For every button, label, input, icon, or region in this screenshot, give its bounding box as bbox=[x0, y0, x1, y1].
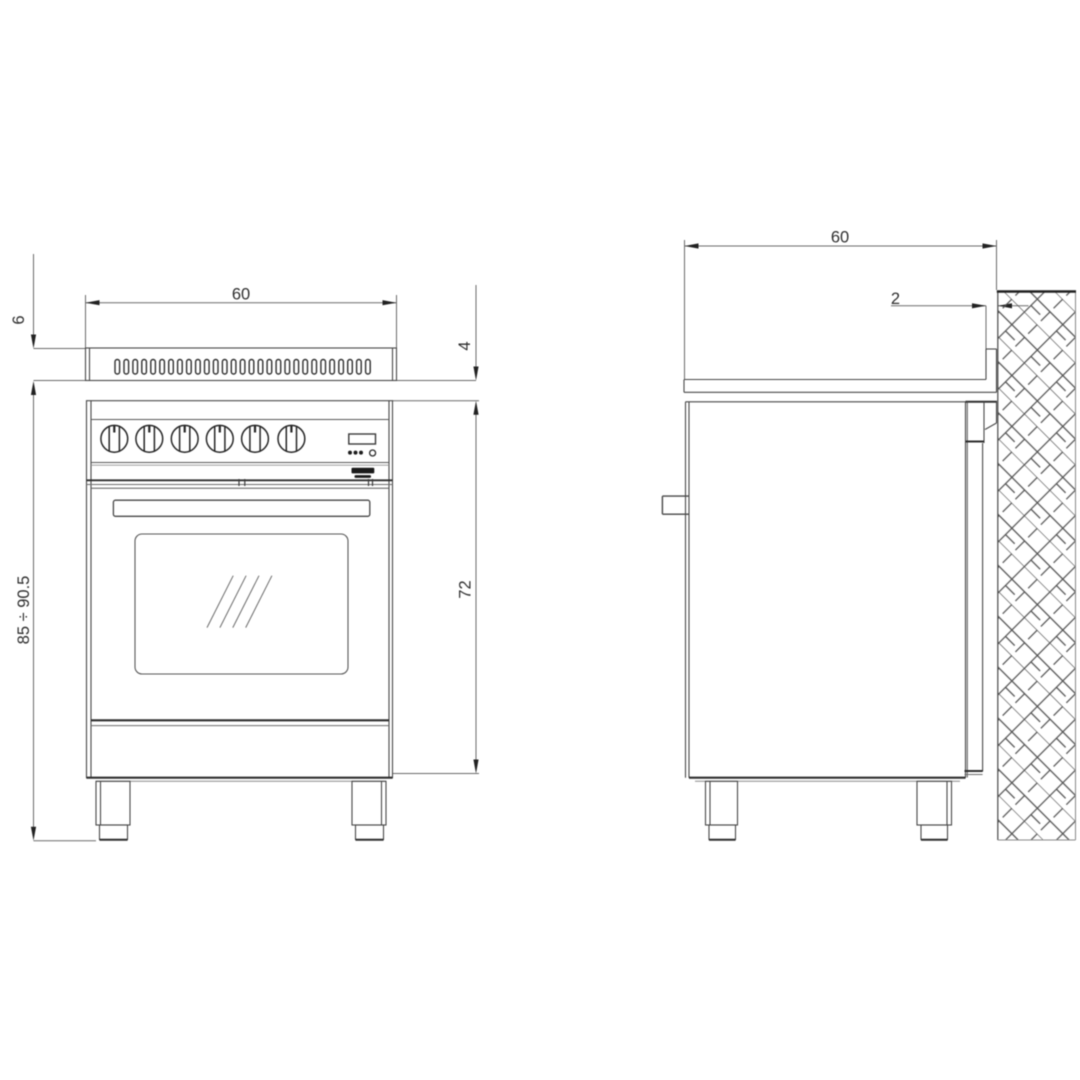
svg-text:85 ÷ 90.5: 85 ÷ 90.5 bbox=[15, 576, 33, 645]
svg-text:60: 60 bbox=[232, 286, 250, 304]
svg-text:60: 60 bbox=[831, 229, 849, 247]
svg-text:72: 72 bbox=[457, 580, 475, 598]
svg-text:4: 4 bbox=[456, 341, 474, 350]
svg-text:6: 6 bbox=[10, 315, 28, 324]
svg-text:2: 2 bbox=[891, 290, 900, 308]
